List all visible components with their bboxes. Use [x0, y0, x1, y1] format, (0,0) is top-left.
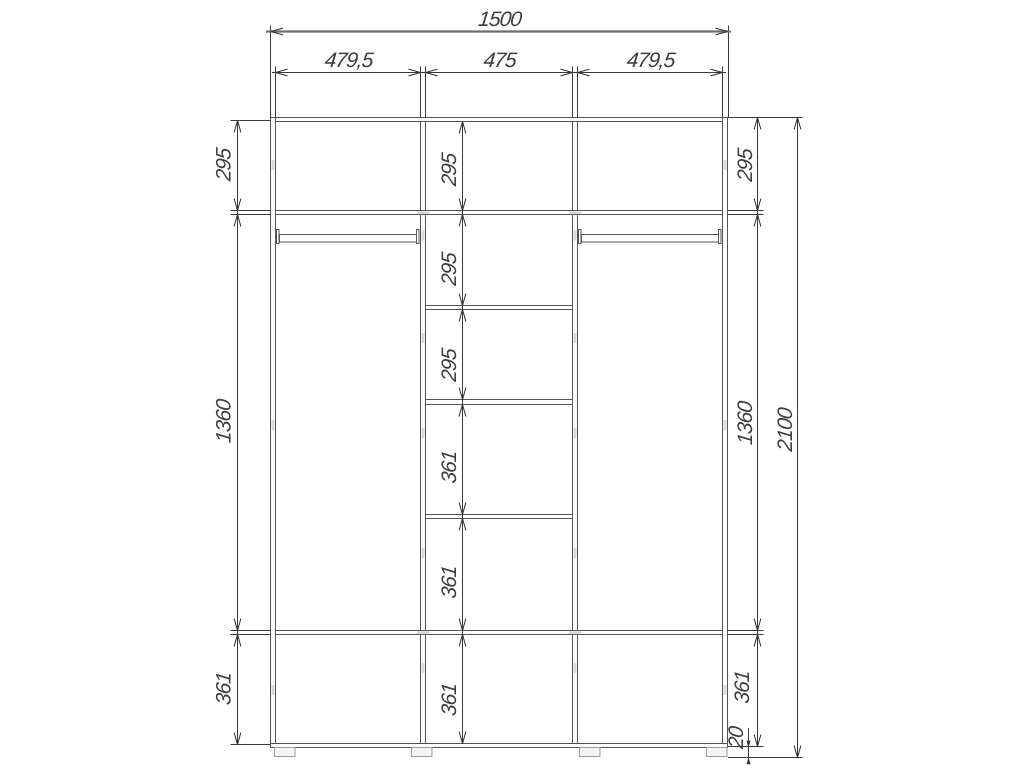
svg-text:295: 295	[438, 151, 461, 188]
svg-text:295: 295	[438, 251, 461, 288]
svg-text:479,5: 479,5	[626, 49, 677, 72]
svg-text:361: 361	[438, 450, 461, 484]
svg-text:361: 361	[438, 565, 461, 599]
svg-text:479,5: 479,5	[324, 49, 375, 72]
svg-text:361: 361	[438, 683, 461, 717]
svg-text:295: 295	[213, 146, 236, 183]
svg-text:1360: 1360	[213, 397, 236, 443]
svg-text:1500: 1500	[477, 8, 523, 31]
svg-text:475: 475	[482, 49, 518, 72]
svg-text:361: 361	[731, 670, 754, 704]
svg-text:2100: 2100	[774, 406, 797, 453]
svg-text:20: 20	[725, 725, 748, 751]
svg-text:361: 361	[213, 672, 236, 706]
svg-text:295: 295	[734, 147, 757, 184]
svg-text:1360: 1360	[734, 399, 757, 445]
svg-text:295: 295	[438, 347, 461, 384]
